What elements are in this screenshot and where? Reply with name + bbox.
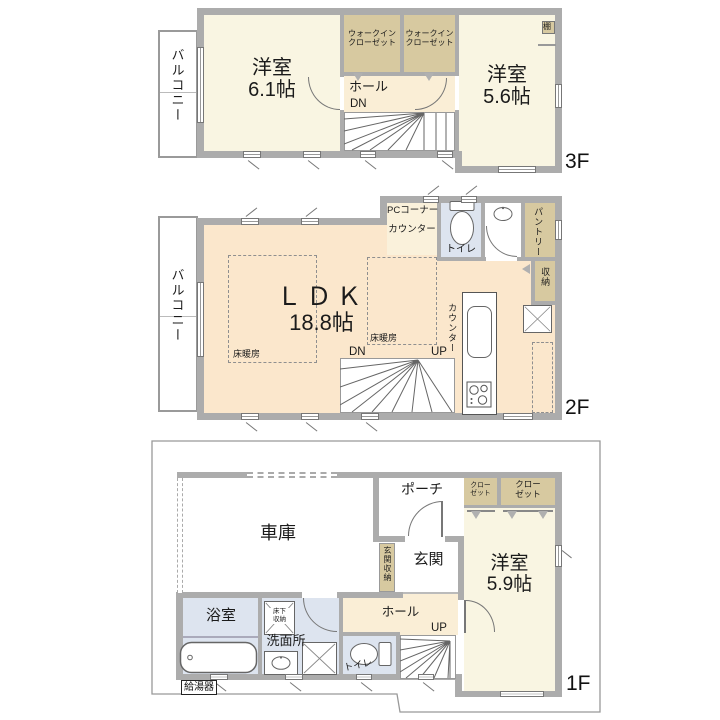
wall <box>373 536 405 542</box>
wall <box>464 505 555 508</box>
wall <box>176 592 302 598</box>
garage-opening-dashed <box>247 472 337 478</box>
garage-label: 車庫 <box>183 523 373 543</box>
wall-outer <box>177 472 247 478</box>
wall <box>339 632 400 636</box>
floor-label-1f: 1F <box>566 672 591 696</box>
stairs-1f <box>400 635 456 679</box>
entrance-storage-label: 玄関収納 <box>382 546 391 582</box>
window <box>356 674 372 680</box>
entrance-door-leaf <box>441 501 443 537</box>
window <box>285 674 303 680</box>
hanger-mark <box>507 511 517 519</box>
washbasin-icon <box>266 653 296 673</box>
room59-label: 洋室 5.9帖 <box>464 553 555 596</box>
bath-divider <box>183 636 258 638</box>
hanger-mark <box>471 511 481 519</box>
washroom-label: 洗面所 <box>258 634 314 649</box>
up-1f-label: UP <box>431 622 447 635</box>
window <box>418 674 434 680</box>
wall-outer <box>555 472 562 697</box>
room59-door-leaf <box>464 600 466 633</box>
room59-size: 5.9帖 <box>487 574 532 595</box>
wall-outer <box>337 472 562 478</box>
closet1-label: クロー ゼット <box>464 482 497 497</box>
hall-1f-label: ホール <box>343 605 458 619</box>
closet2-label: クロー ゼット <box>501 480 555 499</box>
step-line <box>403 592 458 594</box>
window <box>555 545 562 567</box>
entrance-label: 玄関 <box>399 552 458 569</box>
water-heater-label: 給湯器 <box>184 682 214 693</box>
floor-plan: バルコニー 棚 洋室 6.1帖 <box>0 0 720 720</box>
water-heater-box: 給湯器 <box>181 680 217 695</box>
window <box>500 691 544 697</box>
wall <box>337 592 403 598</box>
bathroom-label: 浴室 <box>186 608 256 625</box>
underfloor-label: 床下 収納 <box>266 608 293 624</box>
hanger-mark <box>538 511 548 519</box>
bathtub-icon <box>179 641 258 674</box>
room59-name: 洋室 <box>490 553 528 574</box>
porch-label: ポーチ <box>379 482 465 498</box>
